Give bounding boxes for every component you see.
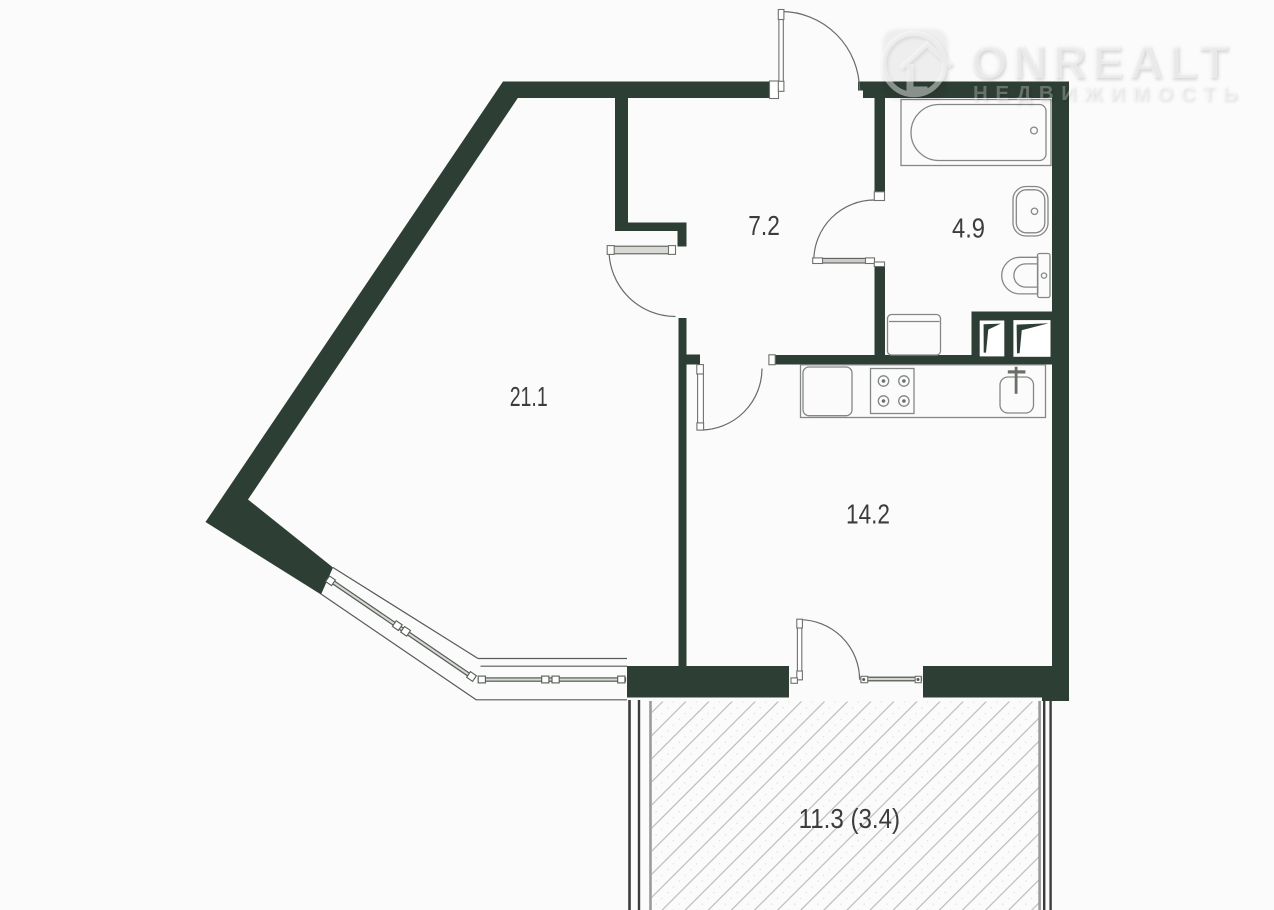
- svg-text:21.1: 21.1: [510, 381, 548, 412]
- svg-text:11.3 (3.4): 11.3 (3.4): [799, 803, 901, 834]
- svg-text:14.2: 14.2: [846, 499, 890, 530]
- svg-text:7.2: 7.2: [748, 210, 780, 241]
- svg-text:4.9: 4.9: [952, 213, 985, 244]
